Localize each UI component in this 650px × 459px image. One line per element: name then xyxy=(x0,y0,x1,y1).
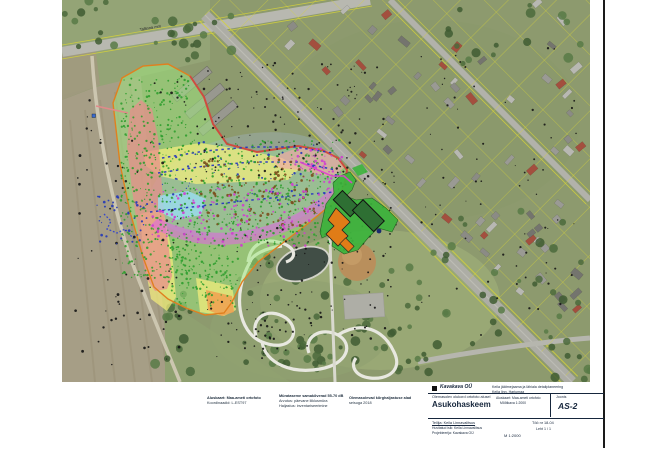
stakeholder-line: Huvitatud isik: Keila Linnavalitsus xyxy=(432,426,482,430)
note-line: Haljastus: inventariseerimine xyxy=(279,404,357,409)
drawing-title: Asukohaskeem xyxy=(432,400,491,409)
note-line: seisuga 2018 xyxy=(349,401,431,406)
project-name: Keila jäätmejaama ja lähiala detailplane… xyxy=(492,385,563,389)
note-line: Koordinaadid: L-EST97 xyxy=(207,401,279,406)
sheet-number: AS-2 xyxy=(558,401,577,411)
client-line: Tellija: Keila Linnavalitsus xyxy=(432,421,475,425)
work-number: Töö nr 18-04 xyxy=(532,421,554,425)
legend-note-3: Olemasolevad kõrghaljastuse alad seisuga… xyxy=(349,396,431,406)
titleblock-rule xyxy=(428,418,604,419)
drawing-note: Olemasolev olukord ortofoto alusel xyxy=(432,395,490,399)
titleblock-divider xyxy=(550,394,551,417)
sheet-count: Leht 1 / 1 xyxy=(536,427,551,431)
parking-pad xyxy=(343,293,385,320)
well-marker xyxy=(377,229,382,234)
firm-name: Kavakava OÜ xyxy=(440,384,472,390)
titleblock-rule xyxy=(428,393,604,394)
sheet-frame-line xyxy=(603,0,605,448)
legend-note-1: Aluskaart: Maa-ameti ortofoto Koordinaad… xyxy=(207,396,279,406)
legend-note-2: Mürataseme samakõverad 55-70 dB Arvutus:… xyxy=(279,394,357,409)
blue-square-marker xyxy=(92,114,96,118)
drawing-extra-1: Aluskaart: Maa-ameti ortofoto xyxy=(496,396,540,400)
firm-logo-icon xyxy=(432,386,437,391)
sheet-number-label: Joonis xyxy=(556,395,566,399)
designer-line: Projekteerija: Kavakava OÜ xyxy=(432,431,474,435)
title-block: Kavakava OÜ Keila jäätmejaama ja lähiala… xyxy=(428,383,604,449)
scale-text: M 1:2000 xyxy=(504,433,521,438)
drawing-extra-2: Mõõtkava 1:2000 xyxy=(500,401,526,405)
